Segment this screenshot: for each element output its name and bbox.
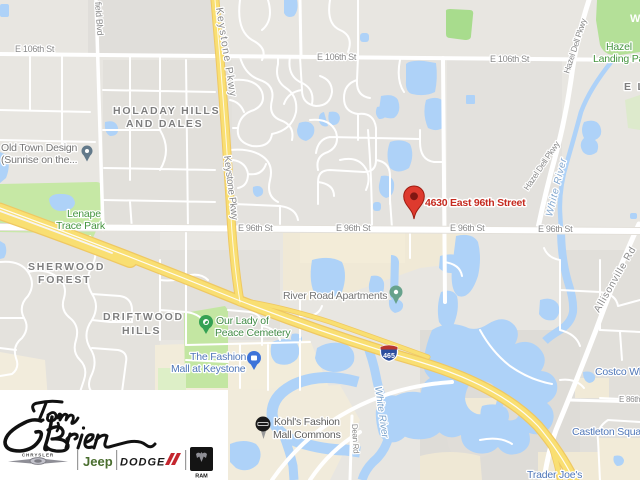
svg-text:Landing Par: Landing Par	[593, 53, 640, 65]
svg-text:E L: E L	[624, 81, 640, 93]
svg-text:Trader Joe's: Trader Joe's	[527, 469, 582, 480]
svg-text:CHRYSLER: CHRYSLER	[22, 453, 54, 458]
svg-text:Lenape: Lenape	[67, 208, 101, 220]
svg-text:Trace Park: Trace Park	[56, 220, 106, 232]
svg-text:AND DALES: AND DALES	[126, 118, 203, 130]
svg-text:Castleton Squa: Castleton Squa	[572, 426, 640, 438]
svg-text:SHERWOOD: SHERWOOD	[28, 261, 105, 273]
svg-text:Costco Whol: Costco Whol	[595, 366, 640, 378]
svg-text:E 106th St: E 106th St	[15, 44, 55, 54]
svg-text:DODGE: DODGE	[120, 457, 165, 469]
svg-text:RAM: RAM	[195, 474, 208, 480]
svg-text:Mall Commons: Mall Commons	[273, 429, 341, 441]
svg-text:4630 East 96th Street: 4630 East 96th Street	[425, 197, 526, 209]
svg-text:Dean Rd: Dean Rd	[350, 424, 361, 454]
svg-text:Our Lady of: Our Lady of	[216, 315, 269, 327]
svg-text:The Fashion: The Fashion	[190, 351, 247, 363]
svg-text:W: W	[630, 13, 640, 25]
svg-text:E 96th St: E 96th St	[450, 223, 485, 233]
svg-text:Jeep: Jeep	[83, 454, 113, 469]
svg-text:Old Town Design: Old Town Design	[1, 142, 78, 154]
svg-text:E 106th St: E 106th St	[317, 52, 357, 62]
svg-text:E 86th St: E 86th St	[619, 395, 640, 404]
svg-text:E 96th St: E 96th St	[336, 223, 371, 233]
svg-text:Hazel: Hazel	[606, 41, 632, 53]
svg-text:HILLS: HILLS	[122, 325, 161, 337]
svg-text:E 106th St: E 106th St	[490, 54, 530, 64]
svg-text:Kohl's Fashion: Kohl's Fashion	[274, 416, 340, 428]
svg-text:465: 465	[383, 353, 395, 360]
svg-text:HOLADAY HILLS: HOLADAY HILLS	[113, 105, 220, 117]
svg-text:DRIFTWOOD: DRIFTWOOD	[103, 311, 184, 323]
svg-text:FOREST: FOREST	[38, 274, 91, 286]
svg-text:E 96th St: E 96th St	[538, 224, 573, 234]
svg-text:Mall at Keystone: Mall at Keystone	[171, 363, 246, 375]
svg-text:(Sunrise on the...: (Sunrise on the...	[1, 154, 77, 166]
svg-text:Peace Cemetery: Peace Cemetery	[215, 327, 291, 339]
svg-text:E 96th St: E 96th St	[238, 223, 273, 233]
svg-text:River Road Apartments: River Road Apartments	[283, 290, 387, 302]
